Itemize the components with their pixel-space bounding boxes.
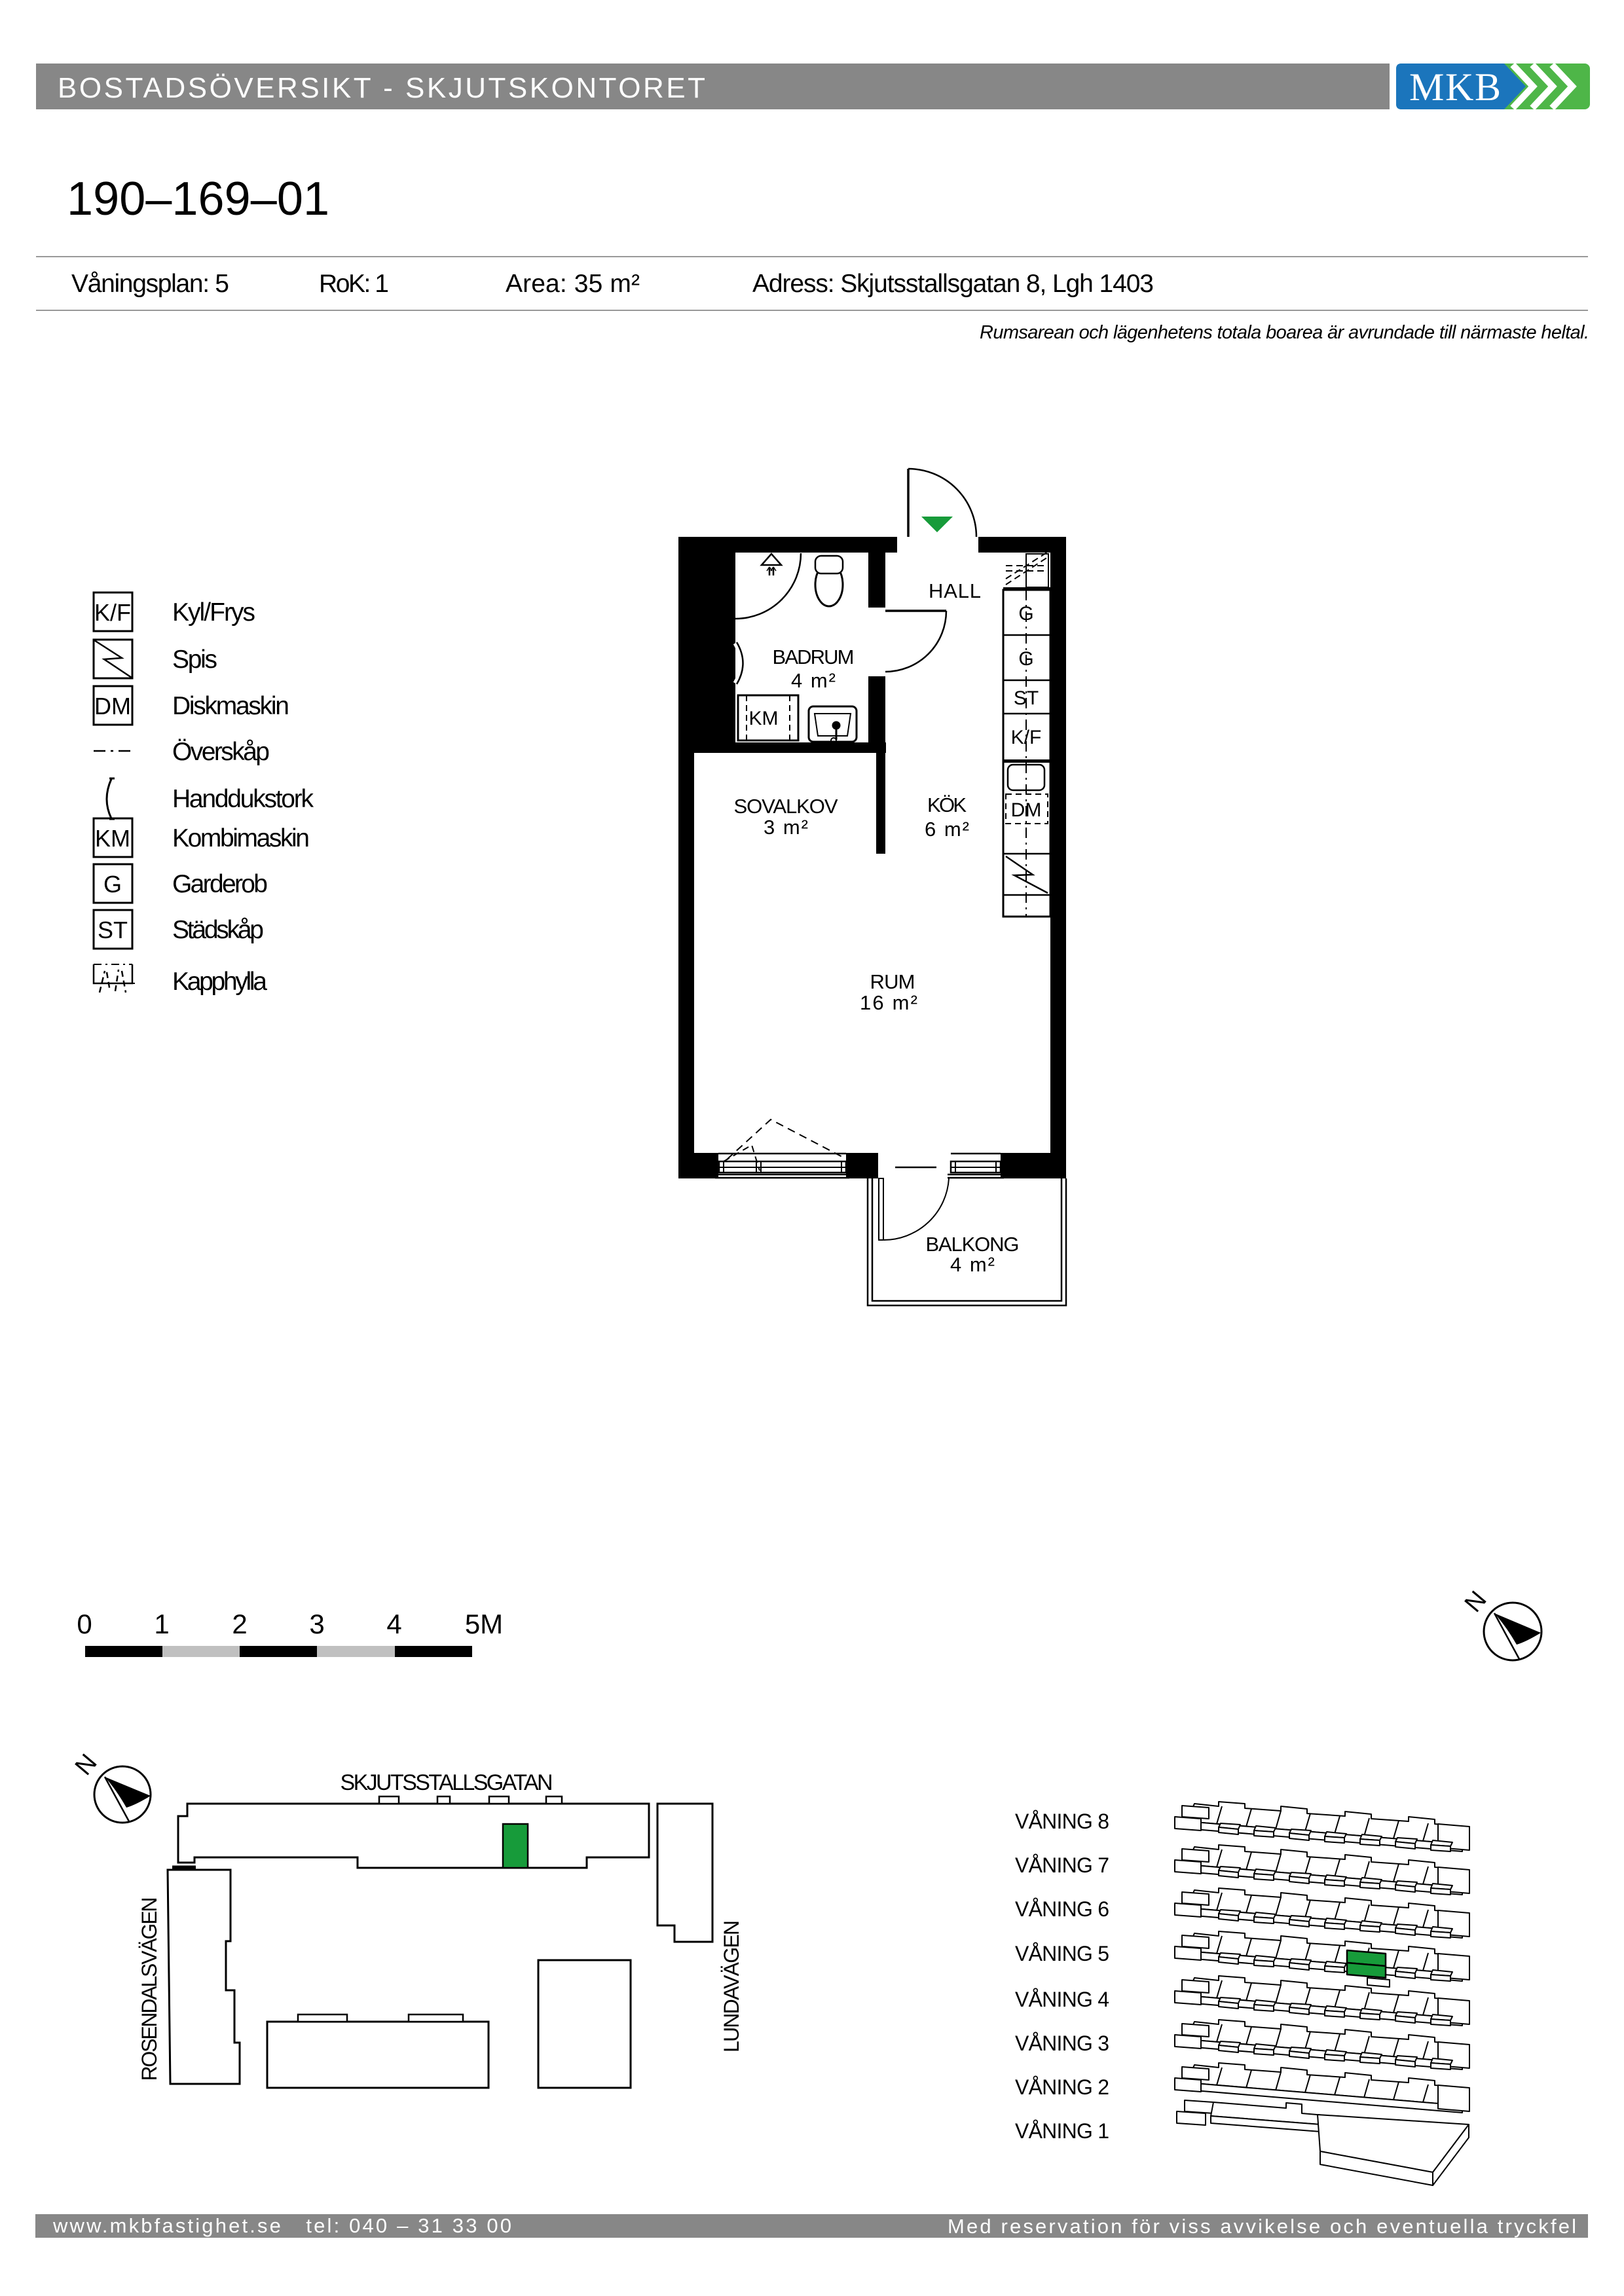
svg-text:Kapphylla: Kapphylla — [172, 968, 267, 996]
svg-text:Våningsplan: 5: Våningsplan: 5 — [71, 270, 229, 298]
svg-text:RUM: RUM — [870, 970, 915, 993]
svg-text:Adress: Skjutsstallsgatan 8, L: Adress: Skjutsstallsgatan 8, Lgh 1403 — [752, 270, 1154, 298]
svg-text:Area: 35 m²: Area: 35 m² — [506, 270, 640, 298]
svg-text:G: G — [103, 871, 122, 898]
svg-text:DM: DM — [94, 693, 131, 720]
svg-text:KÖK: KÖK — [927, 793, 967, 816]
svg-text:4: 4 — [386, 1609, 401, 1639]
svg-text:VÅNING 6: VÅNING 6 — [1015, 1897, 1109, 1921]
svg-text:MKB: MKB — [1409, 65, 1501, 109]
svg-text:VÅNING 5: VÅNING 5 — [1015, 1942, 1109, 1965]
svg-text:ROSENDALSVÄGEN: ROSENDALSVÄGEN — [138, 1897, 161, 2081]
svg-text:1: 1 — [154, 1609, 169, 1639]
svg-text:2: 2 — [232, 1609, 247, 1639]
svg-text:6 m²: 6 m² — [925, 818, 969, 841]
svg-text:KM: KM — [95, 825, 130, 852]
svg-text:4 m²: 4 m² — [791, 669, 836, 692]
svg-text:VÅNING 4: VÅNING 4 — [1015, 1988, 1109, 2011]
svg-text:4 m²: 4 m² — [950, 1253, 995, 1276]
svg-text:RoK: 1: RoK: 1 — [319, 270, 389, 298]
svg-text:Städskåp: Städskåp — [172, 916, 264, 944]
svg-text:VÅNING 7: VÅNING 7 — [1015, 1853, 1109, 1877]
svg-text:Spis: Spis — [172, 646, 217, 674]
svg-text:Handdukstork: Handdukstork — [172, 785, 314, 813]
svg-text:Garderob: Garderob — [172, 870, 268, 898]
svg-text:Rumsarean och lägenhetens tota: Rumsarean och lägenhetens totala boarea … — [980, 322, 1589, 343]
svg-text:SOVALKOV: SOVALKOV — [734, 795, 838, 818]
svg-text:ST: ST — [98, 917, 128, 943]
svg-text:SKJUTSSTALLSGATAN: SKJUTSSTALLSGATAN — [341, 1770, 553, 1795]
svg-text:BADRUM: BADRUM — [773, 646, 855, 668]
svg-text:Med reservation för viss avvik: Med reservation för viss avvikelse och e… — [948, 2215, 1576, 2238]
svg-text:K/F: K/F — [94, 599, 131, 626]
svg-text:VÅNING 2: VÅNING 2 — [1015, 2075, 1109, 2099]
svg-text:0: 0 — [77, 1609, 92, 1639]
svg-text:16 m²: 16 m² — [860, 991, 917, 1014]
svg-text:BALKONG: BALKONG — [926, 1233, 1020, 1256]
svg-text:190–169–01: 190–169–01 — [67, 173, 329, 225]
svg-text:Överskåp: Överskåp — [172, 738, 270, 766]
svg-text:3: 3 — [309, 1609, 324, 1639]
svg-text:VÅNING 8: VÅNING 8 — [1015, 1810, 1109, 1833]
svg-text:Kombimaskin: Kombimaskin — [172, 824, 310, 852]
svg-text:5M: 5M — [465, 1609, 503, 1639]
svg-text:LUNDAVÄGEN: LUNDAVÄGEN — [720, 1920, 743, 2052]
svg-text:Kyl/Frys: Kyl/Frys — [172, 598, 255, 627]
svg-text:3 m²: 3 m² — [764, 816, 808, 839]
svg-text:KM: KM — [749, 708, 779, 729]
svg-text:Diskmaskin: Diskmaskin — [172, 692, 289, 720]
svg-text:VÅNING 3: VÅNING 3 — [1015, 2032, 1109, 2055]
svg-text:HALL: HALL — [929, 579, 981, 602]
svg-text:VÅNING 1: VÅNING 1 — [1015, 2119, 1109, 2143]
